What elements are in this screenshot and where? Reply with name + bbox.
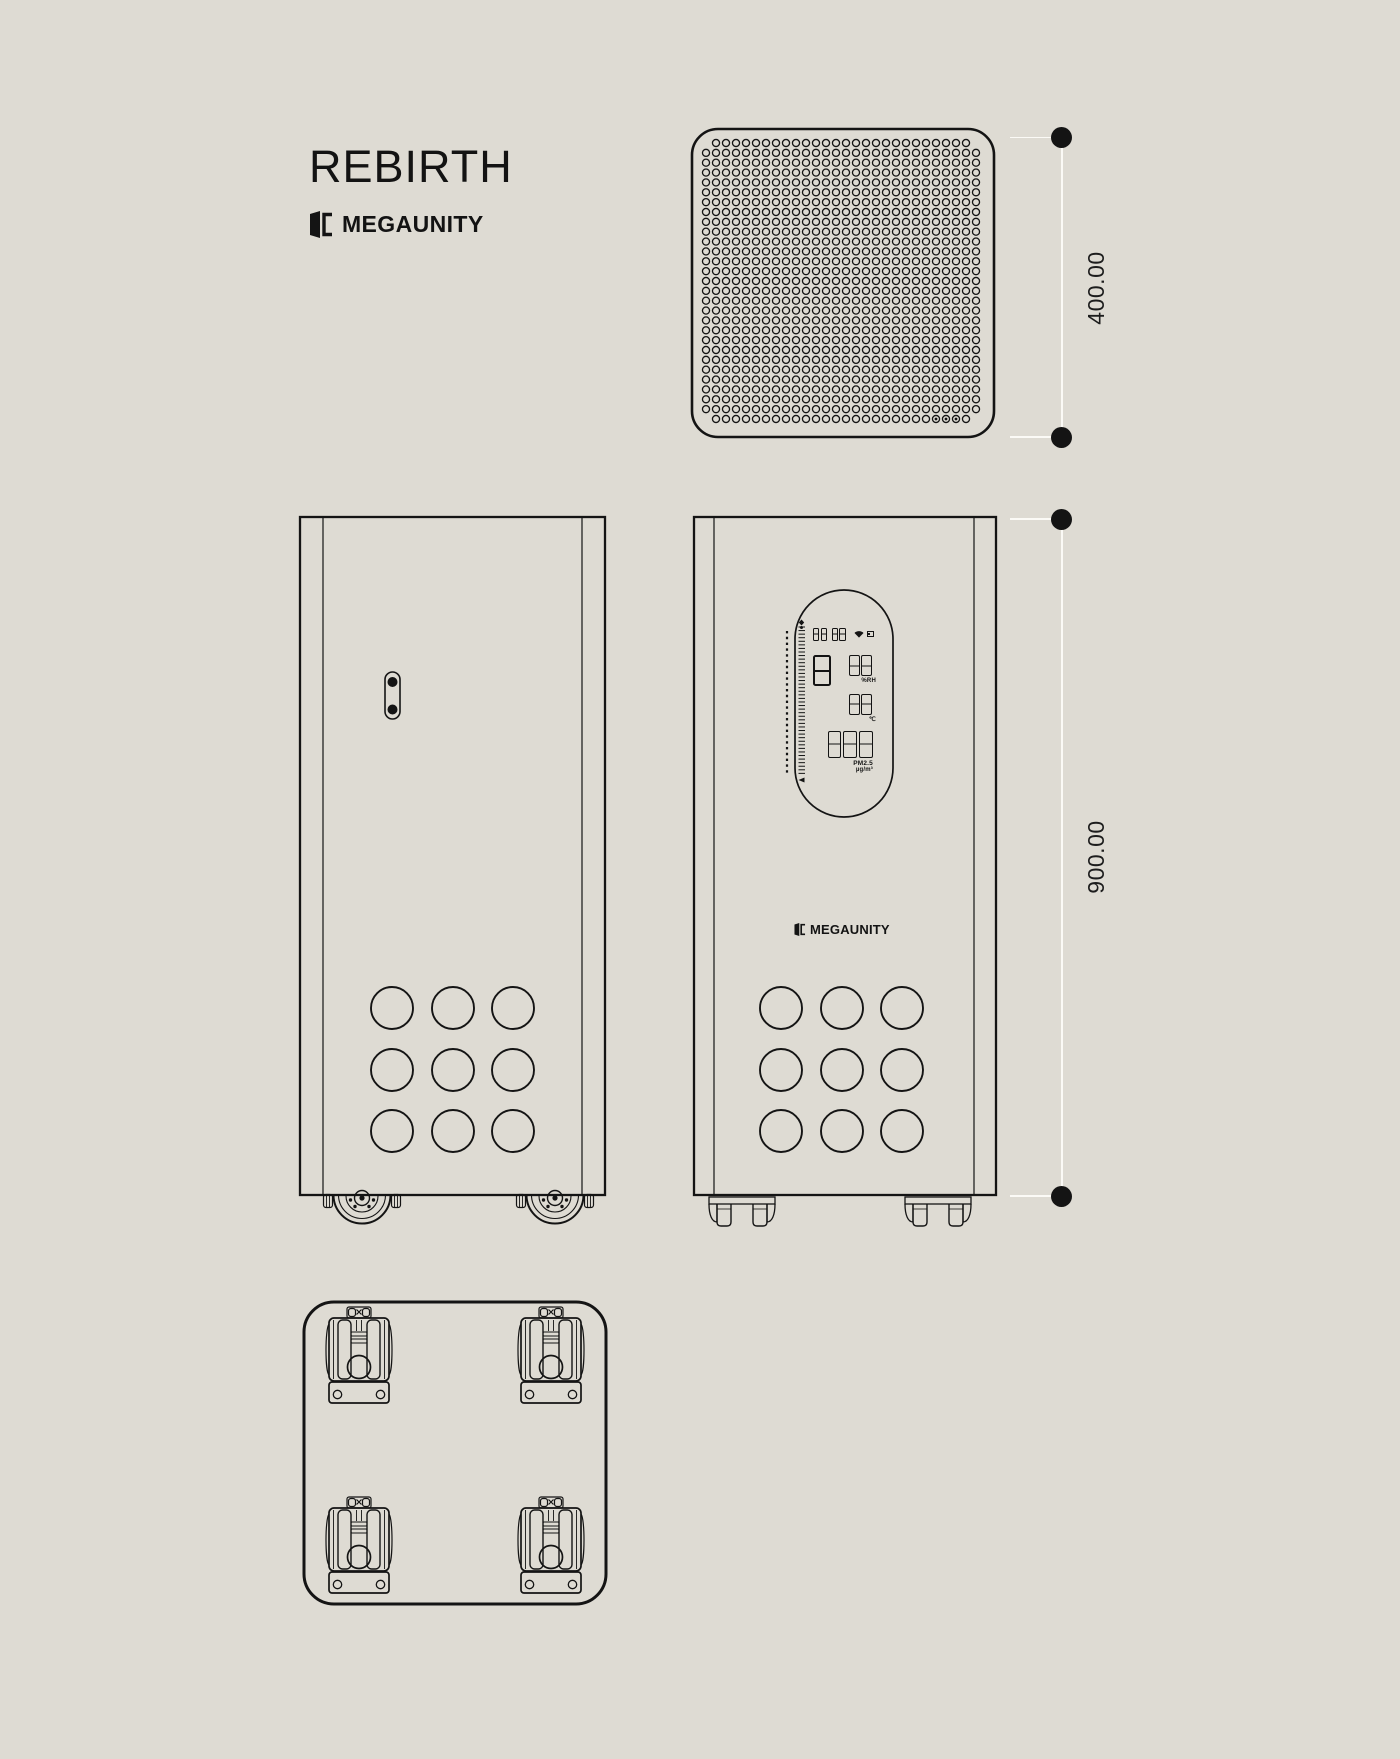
- dimension-height-marker-top: [1051, 509, 1072, 530]
- dimension-height-label: 900.00: [1085, 801, 1107, 913]
- wifi-icon: [854, 630, 864, 638]
- dimension-width-stub-bottom: [1010, 436, 1051, 438]
- side-view: [298, 515, 608, 1230]
- megaunity-logo-icon: [309, 211, 334, 238]
- dimension-height-stub-bottom: [1010, 1195, 1051, 1197]
- brand-logo: MEGAUNITY: [309, 211, 484, 238]
- front-foot-left: [709, 1197, 775, 1226]
- bottom-view: [300, 1298, 610, 1608]
- status-dot: [800, 626, 803, 629]
- blueprint-canvas: REBIRTH MEGAUNITY 400.00: [0, 0, 1400, 1759]
- front-view: [692, 515, 998, 1230]
- clock-display: [813, 628, 846, 641]
- dimension-height-line: [1061, 519, 1063, 1196]
- perforation-grid: [702, 139, 979, 422]
- caster-top-right: [518, 1307, 584, 1403]
- bottom-view-outline: [304, 1302, 606, 1604]
- top-view: [690, 127, 996, 439]
- dimension-marker-bottom: [1051, 427, 1072, 448]
- temperature-unit: ℃: [842, 716, 876, 723]
- gauge-top-marker: [799, 620, 804, 626]
- handle-slot: [385, 672, 400, 719]
- front-foot-right: [905, 1197, 971, 1226]
- gauge-bottom-marker: [799, 778, 805, 783]
- front-view-outline: [694, 517, 996, 1195]
- pm25-display: [828, 731, 873, 758]
- side-vent-grid: [371, 987, 534, 1152]
- humidity-unit: %RH: [842, 678, 876, 684]
- caster-bottom-right: [518, 1497, 584, 1593]
- front-brand-text: MEGAUNITY: [810, 922, 890, 937]
- dimension-width-stub-top: [1010, 137, 1051, 139]
- gauge-tick-scale: [799, 627, 806, 773]
- megaunity-logo-icon-small: [794, 923, 806, 936]
- dimension-marker-top: [1051, 127, 1072, 148]
- pm25-label: PM2.5: [828, 760, 873, 767]
- page-title: REBIRTH: [309, 141, 513, 193]
- mode-digit-display: [813, 655, 831, 686]
- side-view-outline: [300, 517, 605, 1195]
- dimension-height-marker-bottom: [1051, 1186, 1072, 1207]
- display-panel-outline: [795, 590, 893, 817]
- humidity-display: [849, 655, 872, 676]
- caster-bottom-left: [326, 1497, 392, 1593]
- brand-name: MEGAUNITY: [342, 211, 484, 238]
- caster-top-left: [326, 1307, 392, 1403]
- pm25-unit: µg/m³: [828, 767, 873, 773]
- front-brand-label: MEGAUNITY: [794, 922, 890, 937]
- battery-icon: [867, 631, 874, 637]
- front-vent-grid: [760, 987, 923, 1152]
- temperature-display: [849, 694, 872, 715]
- dimension-width-label: 400.00: [1085, 232, 1107, 344]
- dimension-height-stub-top: [1010, 518, 1051, 520]
- dimension-width-line: [1061, 138, 1063, 438]
